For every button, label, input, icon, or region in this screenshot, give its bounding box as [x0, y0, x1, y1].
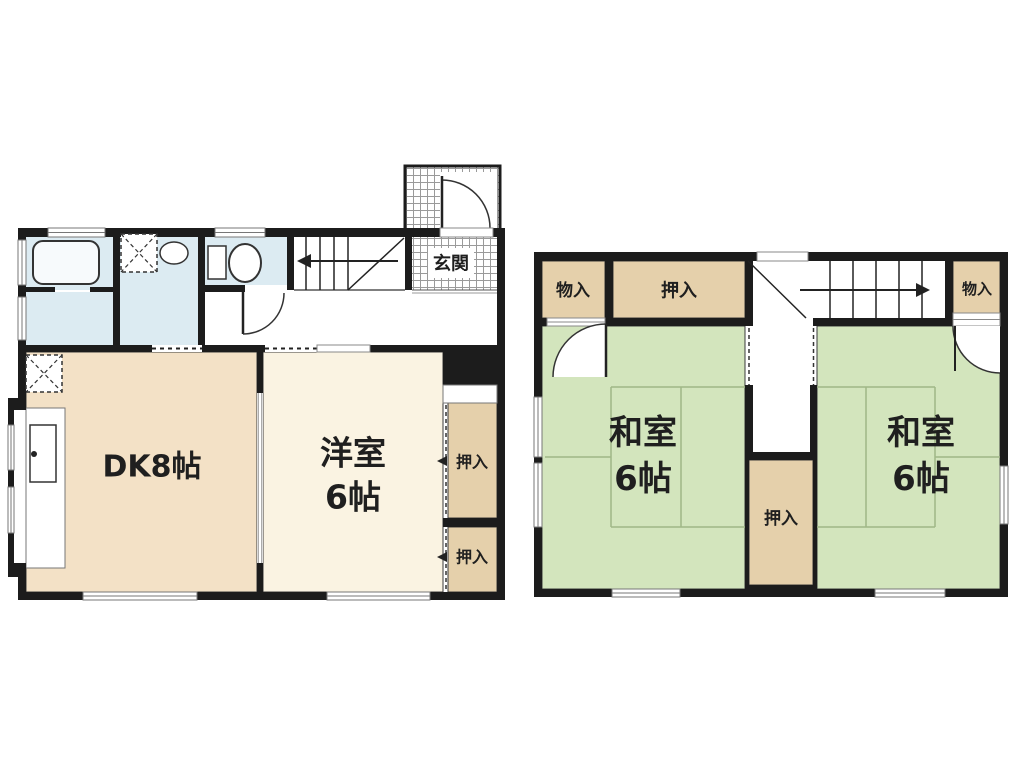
window-left-changing — [18, 297, 26, 340]
western-room-name: 洋室 — [320, 434, 386, 473]
opening-porch-to-genkan — [440, 228, 493, 237]
entrance-porch — [405, 166, 500, 232]
opening-stairs-top — [757, 252, 808, 261]
window-left-2 — [534, 463, 542, 527]
window-bottom-dk — [83, 592, 197, 600]
washitsu-left-name: 和室 — [609, 413, 677, 453]
sliding-opening-hall-dk — [265, 345, 317, 352]
closet-upper-label: 押入 — [456, 453, 488, 472]
window-bottom-right-room — [875, 589, 945, 597]
washitsu-right-size: 6帖 — [892, 459, 950, 499]
closet-top-label: 押入 — [661, 280, 697, 302]
window-east-notch — [443, 385, 497, 403]
genkan-step-edge — [412, 290, 497, 293]
western-room-size: 6帖 — [325, 478, 381, 517]
window-left-1 — [534, 397, 542, 457]
dk-label: DK8帖 — [102, 450, 201, 485]
corridor-floor — [753, 326, 813, 452]
floor1-plan: 玄関 DK8帖 洋室 6帖 押入 押入 — [8, 166, 505, 600]
window-right — [1000, 466, 1008, 524]
sliding-opening-washroom-dk — [152, 345, 202, 352]
washitsu-left-size: 6帖 — [614, 459, 672, 499]
storage-left-label: 物入 — [556, 280, 590, 301]
window-top-toilet — [215, 228, 265, 237]
window-alcove-2 — [8, 487, 14, 533]
closet-lower-label: 押入 — [456, 548, 488, 567]
genkan-label: 玄関 — [433, 253, 469, 275]
toilet-icon — [208, 244, 261, 282]
storage-right-label: 物入 — [962, 280, 992, 298]
window-bottom-left-room — [612, 589, 680, 597]
window-alcove-1 — [8, 425, 14, 470]
floor2-plan: 物入 押入 物入 和室 6帖 和室 6帖 押入 — [534, 252, 1008, 597]
floorplan-svg: 玄関 DK8帖 洋室 6帖 押入 押入 — [0, 0, 1024, 768]
floorplan-image: 玄関 DK8帖 洋室 6帖 押入 押入 — [0, 0, 1024, 768]
washitsu-right-name: 和室 — [887, 413, 955, 453]
opening-hall-western — [317, 345, 370, 352]
window-bottom-western — [327, 592, 430, 600]
bathtub-icon — [33, 241, 99, 284]
sliding-opening-storage-right — [953, 313, 1000, 326]
changing-area-floor — [26, 292, 113, 345]
washing-machine-icon — [121, 234, 157, 272]
hallway-floor — [205, 292, 497, 345]
window-left-bath — [18, 240, 26, 285]
door-knob-icon — [31, 451, 37, 457]
back-door-leaf — [30, 425, 56, 482]
washbasin-icon — [160, 242, 188, 264]
window-top-bath — [48, 228, 105, 237]
sliding-door-dk-western — [257, 393, 263, 563]
refrigerator-space-icon — [26, 355, 62, 392]
closet-center-label: 押入 — [764, 508, 798, 529]
